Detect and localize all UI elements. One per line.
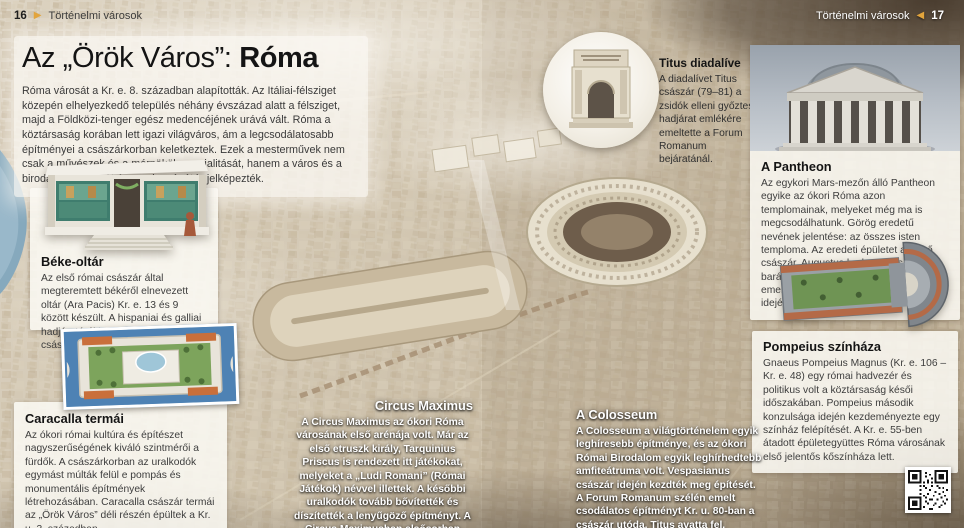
page-title: Az „Örök Város”: Róma bbox=[22, 42, 358, 75]
callout-circus-maximus: Circus Maximus A Circus Maximus az ókori… bbox=[292, 398, 473, 528]
callout-title: Circus Maximus bbox=[292, 398, 473, 413]
callout-title: A Colosseum bbox=[576, 407, 764, 422]
callout-title: Béke-oltár bbox=[41, 254, 207, 269]
callout-body: A Circus Maximus az ókori Róma városának… bbox=[292, 416, 473, 528]
section-label-left: Történelmi városok bbox=[49, 10, 143, 22]
caracalla-baths-image bbox=[61, 323, 240, 410]
running-head-left: 16 ▶ Történelmi városok bbox=[14, 10, 142, 22]
callout-body: Gnaeus Pompeius Magnus (Kr. e. 106 – Kr.… bbox=[763, 357, 947, 464]
callout-title: Caracalla termái bbox=[25, 411, 216, 426]
callout-titus: Titus diadalíve A diadalívet Titus csász… bbox=[659, 56, 754, 167]
pompey-theatre-image bbox=[778, 234, 962, 334]
book-spread: 16 ▶ Történelmi városok Történelmi város… bbox=[0, 0, 964, 528]
callout-pompeius: Pompeius színháza Gnaeus Pompeius Magnus… bbox=[752, 331, 958, 473]
page-title-main: Az „Örök Város”: bbox=[22, 42, 239, 74]
page-number-left: 16 bbox=[14, 10, 27, 22]
ara-pacis-image bbox=[38, 148, 216, 250]
arrow-left-icon: ◀ bbox=[917, 11, 925, 21]
page-title-highlight: Róma bbox=[239, 42, 318, 74]
callout-body: A Colosseum a világtörténelem egyik legh… bbox=[576, 425, 764, 528]
pantheon-image bbox=[750, 45, 960, 151]
qr-code bbox=[905, 467, 951, 513]
callout-colosseum: A Colosseum A Colosseum a világtörténele… bbox=[576, 407, 764, 528]
callout-body: Az ókori római kultúra és építészet nagy… bbox=[25, 429, 216, 528]
callout-title: Titus diadalíve bbox=[659, 56, 754, 70]
arrow-right-icon: ▶ bbox=[34, 11, 42, 21]
titus-arch-image bbox=[543, 32, 659, 148]
callout-title: Pompeius színháza bbox=[763, 339, 947, 354]
callout-title: A Pantheon bbox=[761, 159, 949, 174]
callout-caracalla: Caracalla termái Az ókori római kultúra … bbox=[14, 402, 227, 528]
section-label-right: Történelmi városok bbox=[816, 10, 910, 22]
running-head-right: Történelmi városok ◀ 17 bbox=[816, 10, 944, 22]
page-number-right: 17 bbox=[931, 10, 944, 22]
callout-body: A diadalívet Titus császár (79–81) a zsi… bbox=[659, 73, 754, 167]
